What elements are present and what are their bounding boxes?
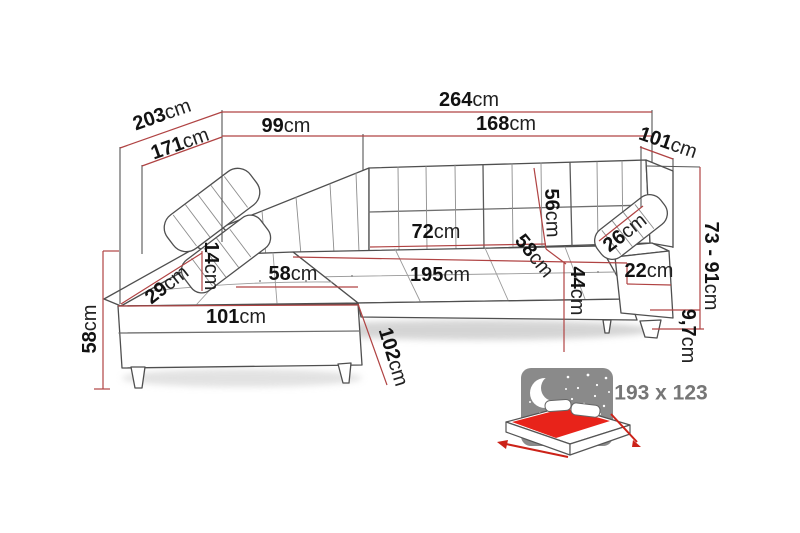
label-203cm: 203cm [130, 95, 194, 136]
label-73-91cm: 73 - 91cm [700, 222, 722, 311]
diagram-canvas: 203cm 171cm 99cm 264cm 168cm 101cm 73 - … [0, 0, 800, 533]
sofa-dimension-diagram: 203cm 171cm 99cm 264cm 168cm 101cm 73 - … [0, 0, 800, 533]
right-leg [603, 320, 611, 333]
label-264cm: 264cm [439, 89, 499, 111]
label-14cm: 14cm [200, 242, 222, 291]
label-101cm-bottom: 101cm [206, 306, 266, 328]
label-97cm: 9,7cm [677, 309, 699, 363]
sleeping-area-size: 193 x 123 [614, 382, 707, 405]
label-99cm: 99cm [262, 115, 311, 137]
shadow-left [122, 369, 362, 387]
label-56cm: 56cm [540, 188, 564, 238]
sleeping-function-icon: 193 x 123 [497, 368, 708, 457]
label-171cm: 171cm [148, 124, 212, 165]
label-44cm: 44cm [566, 267, 588, 316]
label-195cm: 195cm [410, 264, 470, 286]
right-front-face [358, 299, 637, 320]
label-168cm: 168cm [476, 113, 536, 135]
chaise-front-leg [131, 367, 145, 388]
label-72cm: 72cm [412, 221, 461, 243]
label-22cm: 22cm [625, 260, 674, 282]
label-58cm-vert: 58cm [79, 305, 101, 354]
label-58cm-left: 58cm [269, 263, 318, 285]
